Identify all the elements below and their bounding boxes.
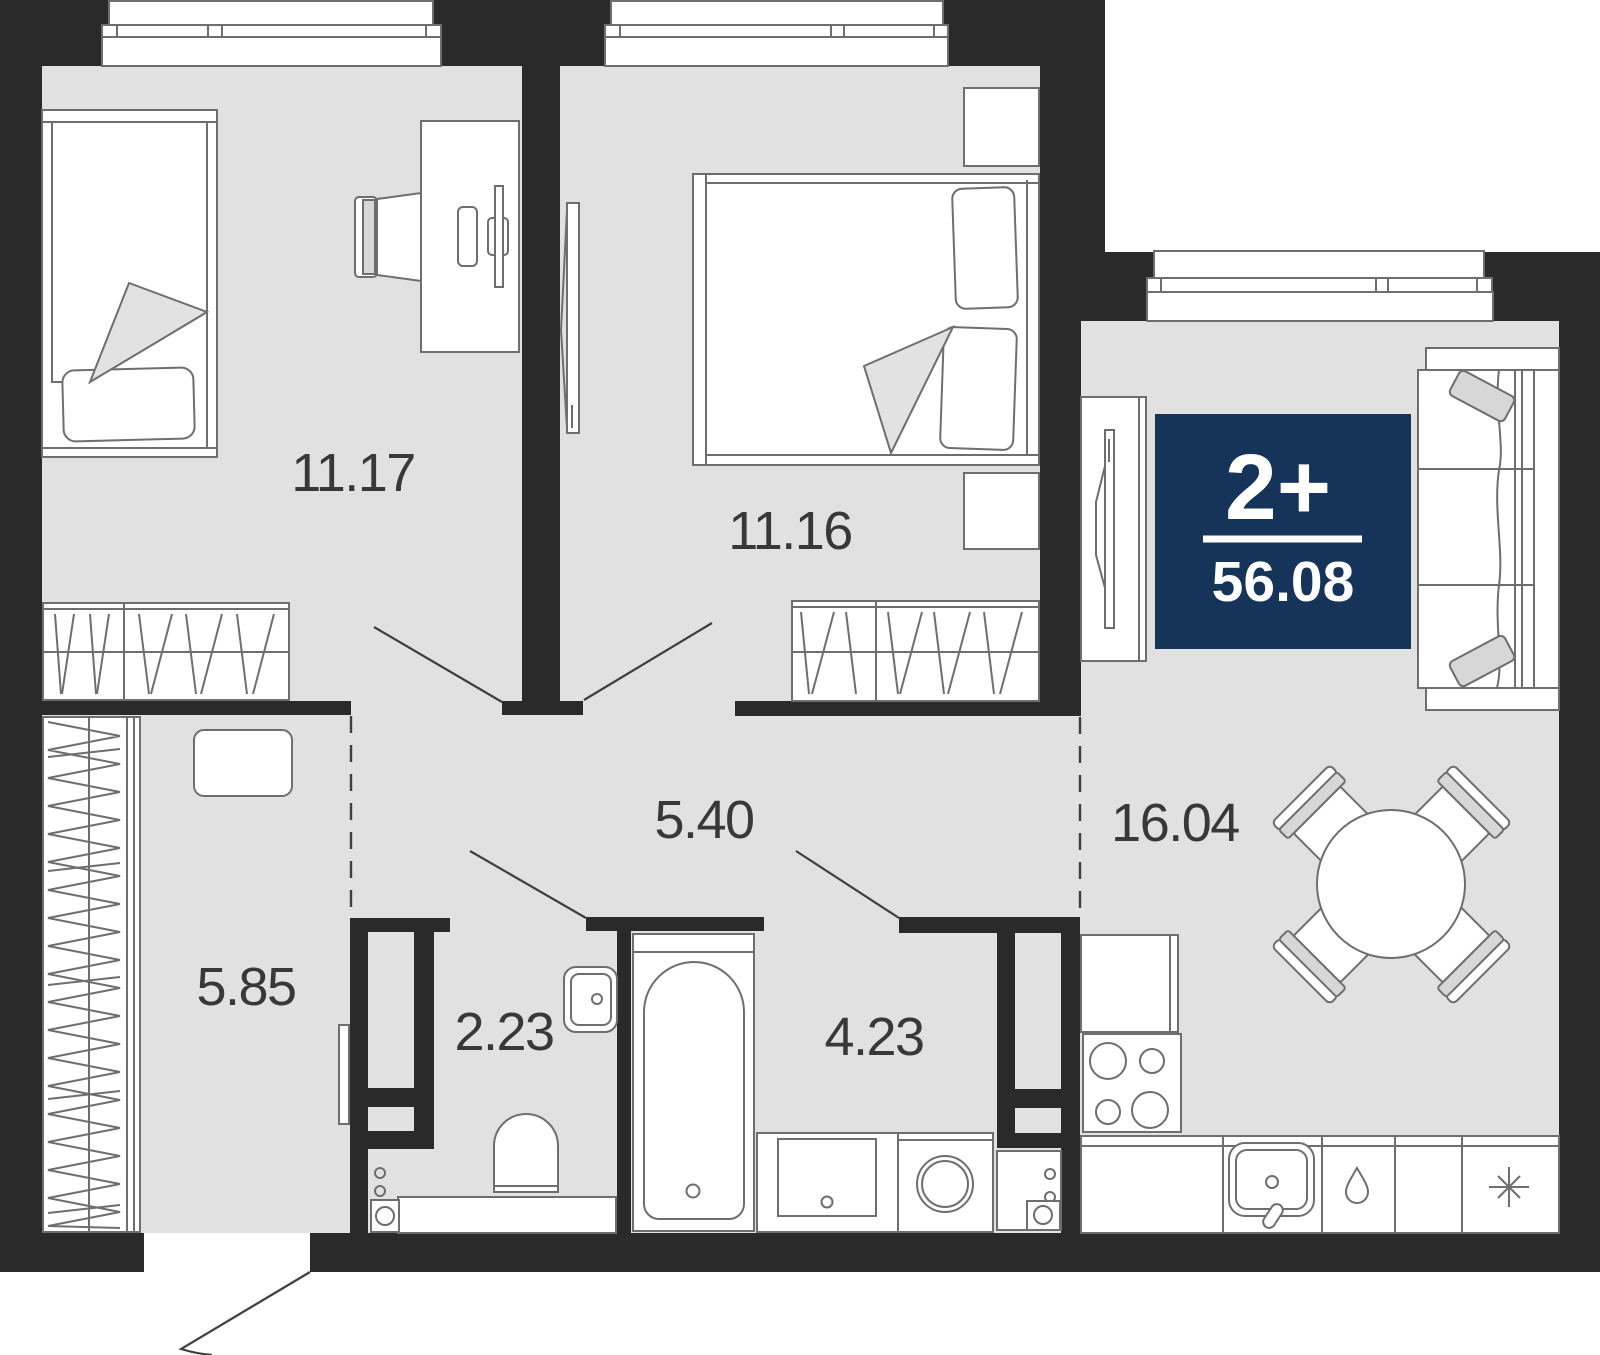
svg-text:16.04: 16.04 — [1111, 793, 1239, 853]
svg-text:5.85: 5.85 — [196, 957, 295, 1017]
svg-text:56.08: 56.08 — [1212, 550, 1355, 614]
svg-text:11.16: 11.16 — [728, 501, 852, 561]
svg-text:2.23: 2.23 — [454, 1002, 553, 1062]
svg-text:4.23: 4.23 — [824, 1007, 923, 1067]
svg-text:2+: 2+ — [1225, 435, 1331, 539]
svg-text:5.40: 5.40 — [654, 790, 753, 850]
svg-text:11.17: 11.17 — [291, 443, 415, 503]
